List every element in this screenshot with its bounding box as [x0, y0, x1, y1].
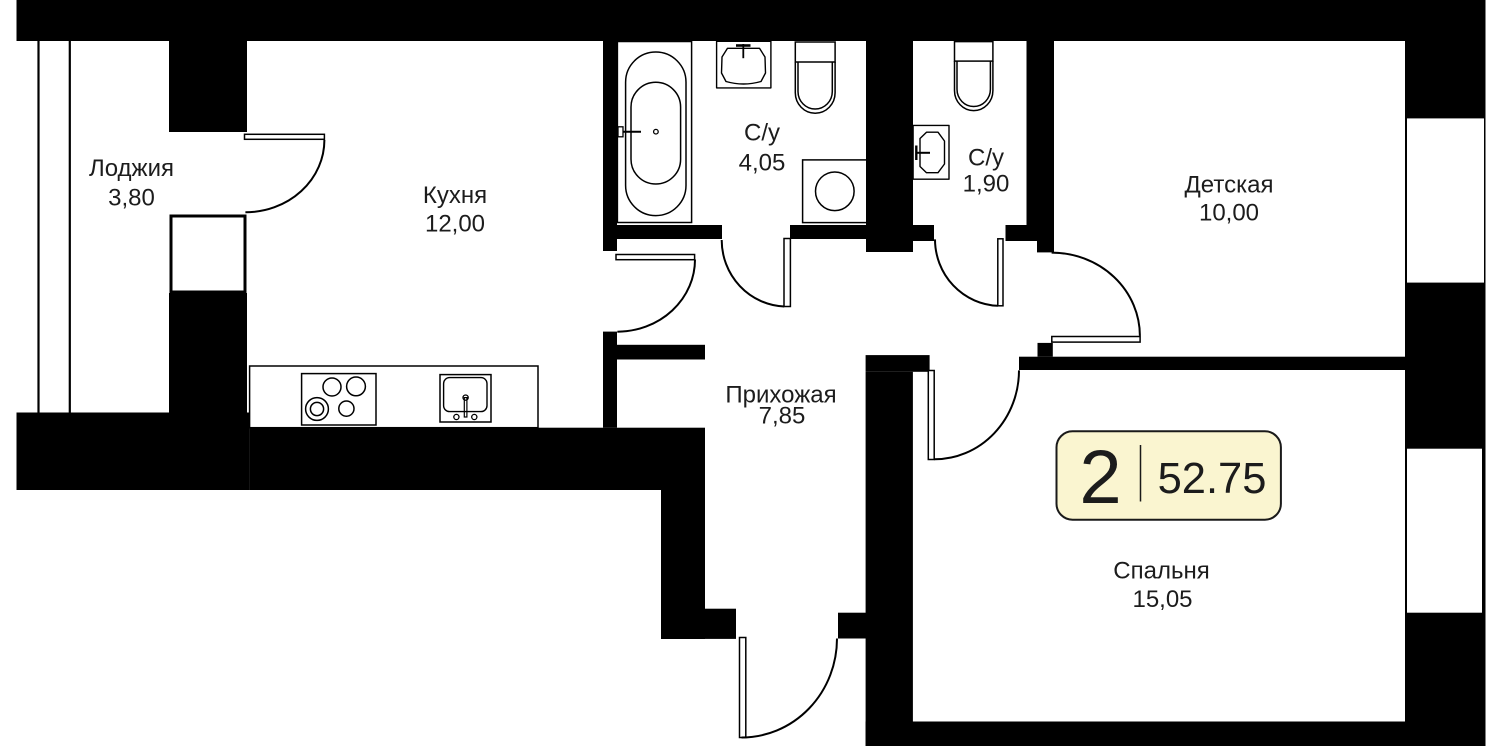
- svg-text:С/у: С/у: [744, 119, 780, 146]
- svg-text:Детская: Детская: [1185, 171, 1274, 198]
- svg-text:12,00: 12,00: [425, 211, 485, 238]
- svg-text:1,90: 1,90: [963, 170, 1010, 197]
- svg-text:52.75: 52.75: [1158, 455, 1267, 503]
- svg-text:10,00: 10,00: [1199, 200, 1259, 227]
- svg-text:4,05: 4,05: [739, 149, 786, 176]
- svg-text:Лоджия: Лоджия: [89, 155, 174, 182]
- svg-text:2: 2: [1079, 435, 1121, 520]
- svg-text:Кухня: Кухня: [423, 182, 487, 209]
- svg-text:3,80: 3,80: [108, 185, 155, 212]
- svg-text:7,85: 7,85: [759, 402, 806, 429]
- svg-text:С/у: С/у: [968, 144, 1004, 171]
- svg-text:15,05: 15,05: [1132, 586, 1192, 613]
- svg-text:Спальня: Спальня: [1113, 558, 1209, 585]
